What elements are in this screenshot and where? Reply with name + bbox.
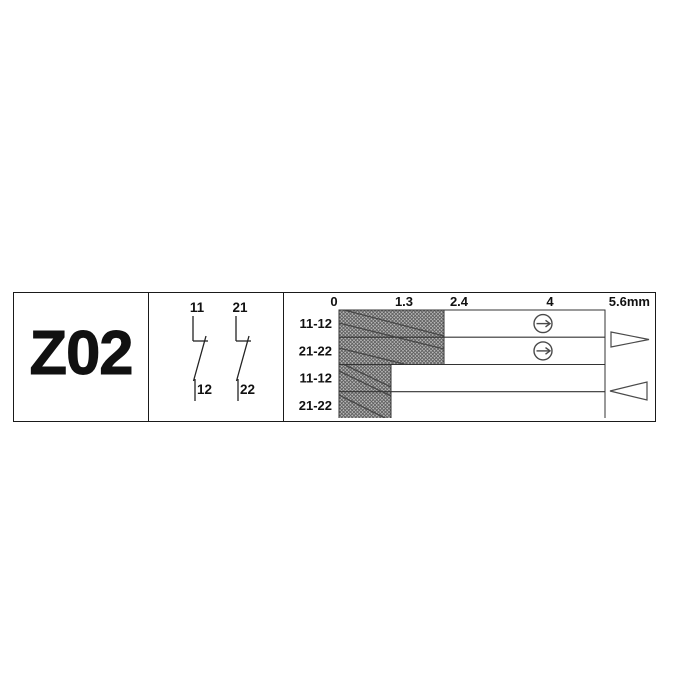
travel-row-labels: 11-12 21-22 11-12 21-22 <box>299 316 332 413</box>
scale-tick-2-4: 2.4 <box>450 294 469 309</box>
contact-terminal-label: 21 <box>232 300 248 315</box>
closed-region-return <box>339 392 391 418</box>
contact-terminal-label: 11 <box>190 300 205 315</box>
closed-region-return <box>339 365 391 392</box>
nc-contact-symbol-2: 21 22 <box>232 300 255 401</box>
row-label: 21-22 <box>299 344 332 359</box>
contact-terminal-label: 22 <box>240 382 255 397</box>
row-label: 11-12 <box>299 371 332 386</box>
travel-diagram-panel: 0 1.3 2.4 4 5.6mm 11-12 21-22 11-12 21-2… <box>283 293 655 421</box>
datasheet-strip: Z02 11 12 21 22 <box>13 292 656 422</box>
scale-tick-5-6mm: 5.6mm <box>609 294 650 309</box>
model-art: Z02 <box>14 293 148 418</box>
scale-tick-0: 0 <box>330 294 337 309</box>
row-label: 21-22 <box>299 398 332 413</box>
contact-terminal-label: 12 <box>197 382 212 397</box>
scale-tick-4: 4 <box>546 294 554 309</box>
scale-tick-1-3: 1.3 <box>395 294 413 309</box>
nc-contact-symbol-1: 11 12 <box>190 300 212 401</box>
travel-scale: 0 1.3 2.4 4 5.6mm <box>330 294 650 309</box>
row-label: 11-12 <box>299 316 332 331</box>
return-direction-icon <box>610 382 647 400</box>
contact-symbol-panel: 11 12 21 22 <box>148 293 283 421</box>
closed-region-actuation <box>339 310 444 337</box>
travel-diagram: 0 1.3 2.4 4 5.6mm 11-12 21-22 11-12 21-2… <box>284 293 654 418</box>
model-label: Z02 <box>30 319 133 388</box>
actuation-direction-icon <box>611 332 649 347</box>
model-panel: Z02 <box>14 293 148 421</box>
contact-symbols: 11 12 21 22 <box>149 293 282 418</box>
